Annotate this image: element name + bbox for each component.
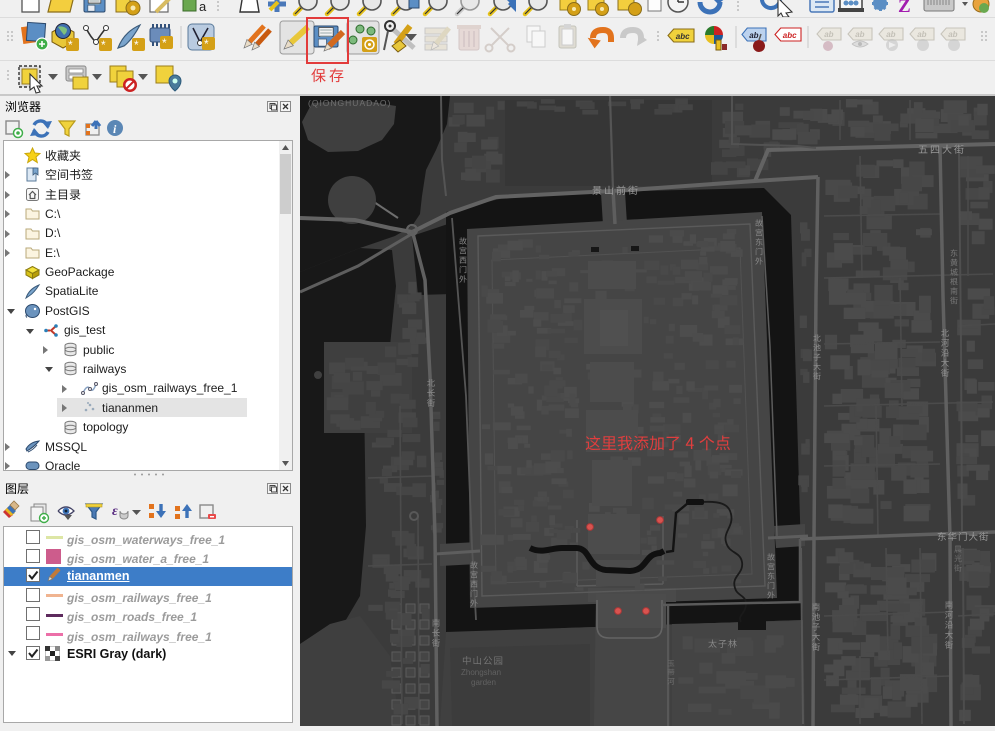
svg-text:garden: garden: [471, 678, 496, 687]
svg-text:*: *: [68, 38, 73, 52]
svg-text:abc: abc: [783, 31, 797, 40]
svg-text:ab: ab: [855, 30, 864, 39]
svg-text:*: *: [134, 38, 139, 52]
svg-text:ab: ab: [886, 30, 895, 39]
svg-text:a: a: [199, 0, 207, 14]
svg-text:ab: ab: [749, 31, 758, 40]
svg-text:*: *: [204, 37, 209, 51]
svg-text:Zhongshan: Zhongshan: [461, 668, 501, 677]
svg-text:Z: Z: [898, 0, 911, 17]
svg-text:ε: ε: [112, 504, 118, 519]
svg-text:ab: ab: [948, 30, 957, 39]
svg-text:ab: ab: [824, 30, 833, 39]
svg-text:abc: abc: [676, 32, 690, 41]
svg-text:*: *: [162, 36, 167, 50]
svg-text:ab: ab: [917, 30, 926, 39]
svg-text:*: *: [101, 38, 106, 52]
svg-text:(QIONGHUADAO): (QIONGHUADAO): [308, 98, 391, 108]
